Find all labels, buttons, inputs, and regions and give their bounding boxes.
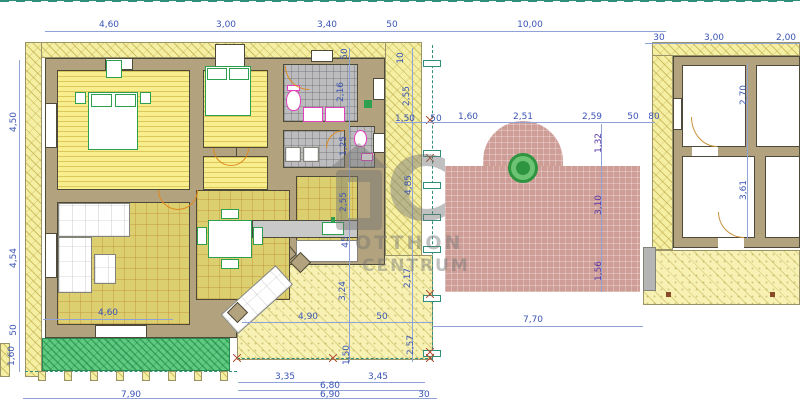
dimension-label: 2,70 [739, 85, 749, 105]
dimension-label: 1,25 [339, 136, 349, 156]
dimension-label: 4,50 [9, 112, 19, 132]
dimension-label: 4,90 [298, 312, 318, 322]
dimension-label: 1,32 [594, 133, 604, 153]
dimension-label: 2,51 [513, 112, 533, 122]
dimension-label: 4,60 [99, 20, 119, 30]
dimension-label: 50 [9, 324, 19, 335]
dimension-label: 50 [430, 114, 441, 124]
dimension-label: 1,60 [7, 346, 17, 366]
dimension-label: 7,70 [523, 315, 543, 325]
dimension-label: 2,55 [402, 86, 412, 106]
dimension-label: 80 [648, 112, 659, 122]
dimension-label: 2,16 [336, 82, 346, 102]
watermark-text-line2: CENTRUM [362, 256, 470, 276]
dimension-label: 1,56 [594, 261, 604, 281]
dimension-label: 45 [341, 236, 351, 247]
dimension-label: 3,10 [594, 195, 604, 215]
dimension-label: 30 [653, 33, 664, 43]
dimension-label: 3,45 [368, 372, 388, 382]
dimension-label: 2,57 [406, 335, 416, 355]
dimension-label: 50 [340, 48, 350, 59]
dimension-label: 3,24 [338, 281, 348, 301]
dimension-label: 4,54 [9, 248, 19, 268]
floor-plan-canvas: 4,603,003,405010,00303,002,004,504,54501… [0, 0, 800, 414]
watermark-logo-letter: C [386, 146, 451, 234]
dimension-label: 2,59 [582, 112, 602, 122]
dimension-label: 2,17 [403, 268, 413, 288]
dimension-label: 4,85 [404, 175, 414, 195]
dimension-label: 3,61 [739, 180, 749, 200]
dimension-label: 7,90 [121, 390, 141, 400]
dimension-label: 3,40 [317, 20, 337, 30]
dimension-label: 3,00 [704, 33, 724, 43]
dimension-label: 2,55 [339, 192, 349, 212]
watermark-text-line1: OTTHON [355, 232, 463, 254]
dimension-label: 50 [376, 312, 387, 322]
dimension-label: 50 [386, 20, 397, 30]
dimension-label: 3,35 [275, 372, 295, 382]
dimension-label: 1,50 [395, 114, 415, 124]
dimension-label: 10 [396, 52, 406, 63]
dimension-label: 6,90 [320, 390, 340, 400]
dimension-label: 50 [627, 112, 638, 122]
dimension-label: 1,50 [342, 345, 352, 365]
dimension-label: 4,60 [98, 308, 118, 318]
dimension-label: 1,60 [458, 112, 478, 122]
dimension-label: 3,00 [216, 20, 236, 30]
dimension-label: 10,00 [517, 20, 543, 30]
dimension-label: 30 [418, 390, 429, 400]
dimension-label: 2,00 [776, 33, 796, 43]
